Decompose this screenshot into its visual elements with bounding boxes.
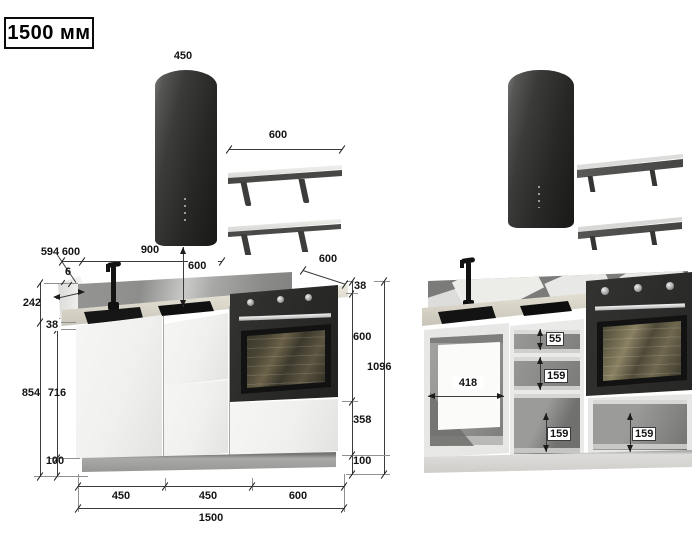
dim-arrowhead — [537, 343, 543, 350]
leader-line — [303, 270, 346, 285]
dim-top-offset: 600 — [56, 246, 86, 258]
dim-arrowhead — [543, 445, 549, 452]
dim-sink-run: 900 — [130, 244, 170, 256]
dim-counter-depth: 600 — [310, 253, 346, 265]
dim-arrowhead — [537, 357, 543, 364]
dim-bottom-right: 600 — [277, 490, 319, 502]
drawing-title: 1500 мм — [4, 17, 94, 49]
dim-arrowhead — [53, 294, 60, 300]
wall-shelf-1-bracket — [298, 179, 309, 203]
dim-arrowhead — [627, 445, 633, 452]
dim-bottom-drawer: 159 — [547, 427, 571, 441]
dim-right-counter: 38 — [354, 280, 374, 292]
faucet-front-base — [108, 302, 119, 310]
dim-shelf-width: 600 — [258, 129, 298, 141]
oven-racks — [247, 330, 325, 388]
oven-knob — [247, 299, 254, 306]
drawer-front-top — [164, 312, 229, 386]
dim-tick — [219, 257, 226, 266]
dim-right-plinth: 100 — [353, 455, 379, 467]
dim-middle-drawer: 159 — [544, 369, 568, 383]
dim-splash-thickness: 6 — [61, 266, 75, 278]
dim-top-drawer: 55 — [546, 332, 564, 346]
oven-knob — [305, 294, 312, 301]
dim-arrowhead — [627, 413, 633, 420]
dim-hood-clearance: 600 — [188, 260, 218, 272]
dim-right-total: 1096 — [367, 361, 403, 373]
oven-open-window-glass — [603, 321, 681, 381]
dim-arrowhead — [180, 300, 186, 307]
dim-arrowhead — [497, 393, 504, 399]
oven-drawer-open-rail — [593, 400, 687, 404]
kitchen-dimension-drawing: 1500 мм 450 600 594 600 900 6 600 600 38… — [0, 0, 700, 558]
wall-shelf-2-bracket — [298, 231, 308, 252]
drawer-front-bottom — [164, 379, 229, 459]
hood-control-leds — [184, 198, 186, 224]
wall-shelf-2-bracket — [241, 234, 251, 255]
wall-shelf-1-open-bracket — [650, 170, 658, 186]
drawer-box-bottom-rail — [514, 394, 580, 398]
faucet-front-tip — [106, 264, 110, 272]
faucet-open-tip — [460, 260, 464, 268]
oven-drawer-front — [230, 398, 338, 458]
dim-inner-width: 418 — [452, 377, 484, 389]
dim-bottom-total: 1500 — [190, 512, 232, 524]
drawer-box-top-front — [514, 349, 580, 353]
dim-line — [40, 283, 41, 476]
cabinet-gap-line — [163, 316, 164, 457]
oven-drawer-open-interior — [593, 400, 687, 450]
dim-arrowhead — [428, 393, 435, 399]
oven-knob — [277, 296, 284, 303]
dim-arrowhead — [543, 413, 549, 420]
range-hood-open — [508, 70, 574, 228]
dim-line — [57, 322, 58, 476]
hood-control-leds — [538, 186, 540, 208]
wall-shelf-1-open-bracket — [588, 176, 596, 192]
dim-line — [428, 396, 504, 397]
dim-line — [78, 486, 344, 487]
oven-open-racks — [603, 321, 681, 381]
dim-bottom-left: 450 — [100, 490, 142, 502]
cabinet-gap-line — [229, 306, 230, 456]
oven-drawer-open-front — [593, 444, 687, 449]
oven-window-glass — [247, 330, 325, 388]
dim-tick — [339, 145, 346, 154]
dim-left-plinth: 100 — [42, 455, 68, 467]
dim-hood-width: 450 — [162, 50, 204, 62]
cabinet-door-left — [76, 314, 163, 459]
drawer-box-mid-front — [514, 386, 580, 390]
extension-line — [34, 476, 88, 477]
dim-right-oven: 600 — [353, 331, 381, 343]
dim-left-cabinet: 854 — [17, 387, 45, 399]
oven-open-knob — [601, 287, 609, 295]
drawer-box-mid-rail — [514, 357, 580, 361]
dim-oven-drawer: 159 — [632, 427, 656, 441]
dim-left-inner: 716 — [43, 387, 71, 399]
dim-line — [78, 508, 344, 509]
dim-left-counter: 38 — [43, 319, 61, 331]
dim-line — [384, 281, 385, 474]
dim-arrowhead — [180, 247, 186, 254]
oven-open-knob — [666, 282, 674, 290]
wall-shelf-2-open-bracket — [590, 236, 597, 250]
dim-arrowhead — [537, 329, 543, 336]
dim-line — [229, 149, 342, 150]
range-hood-front — [155, 70, 217, 246]
dim-line — [352, 281, 353, 474]
dim-left-splash: 242 — [18, 297, 46, 309]
dim-arrowhead — [537, 383, 543, 390]
dim-bottom-middle: 450 — [187, 490, 229, 502]
oven-open-knob — [634, 284, 642, 292]
wall-shelf-2-open-bracket — [650, 231, 657, 245]
dim-line — [183, 247, 184, 307]
dim-arrowhead — [78, 289, 85, 295]
dim-right-base: 358 — [353, 414, 379, 426]
wall-shelf-1-bracket — [240, 182, 251, 206]
